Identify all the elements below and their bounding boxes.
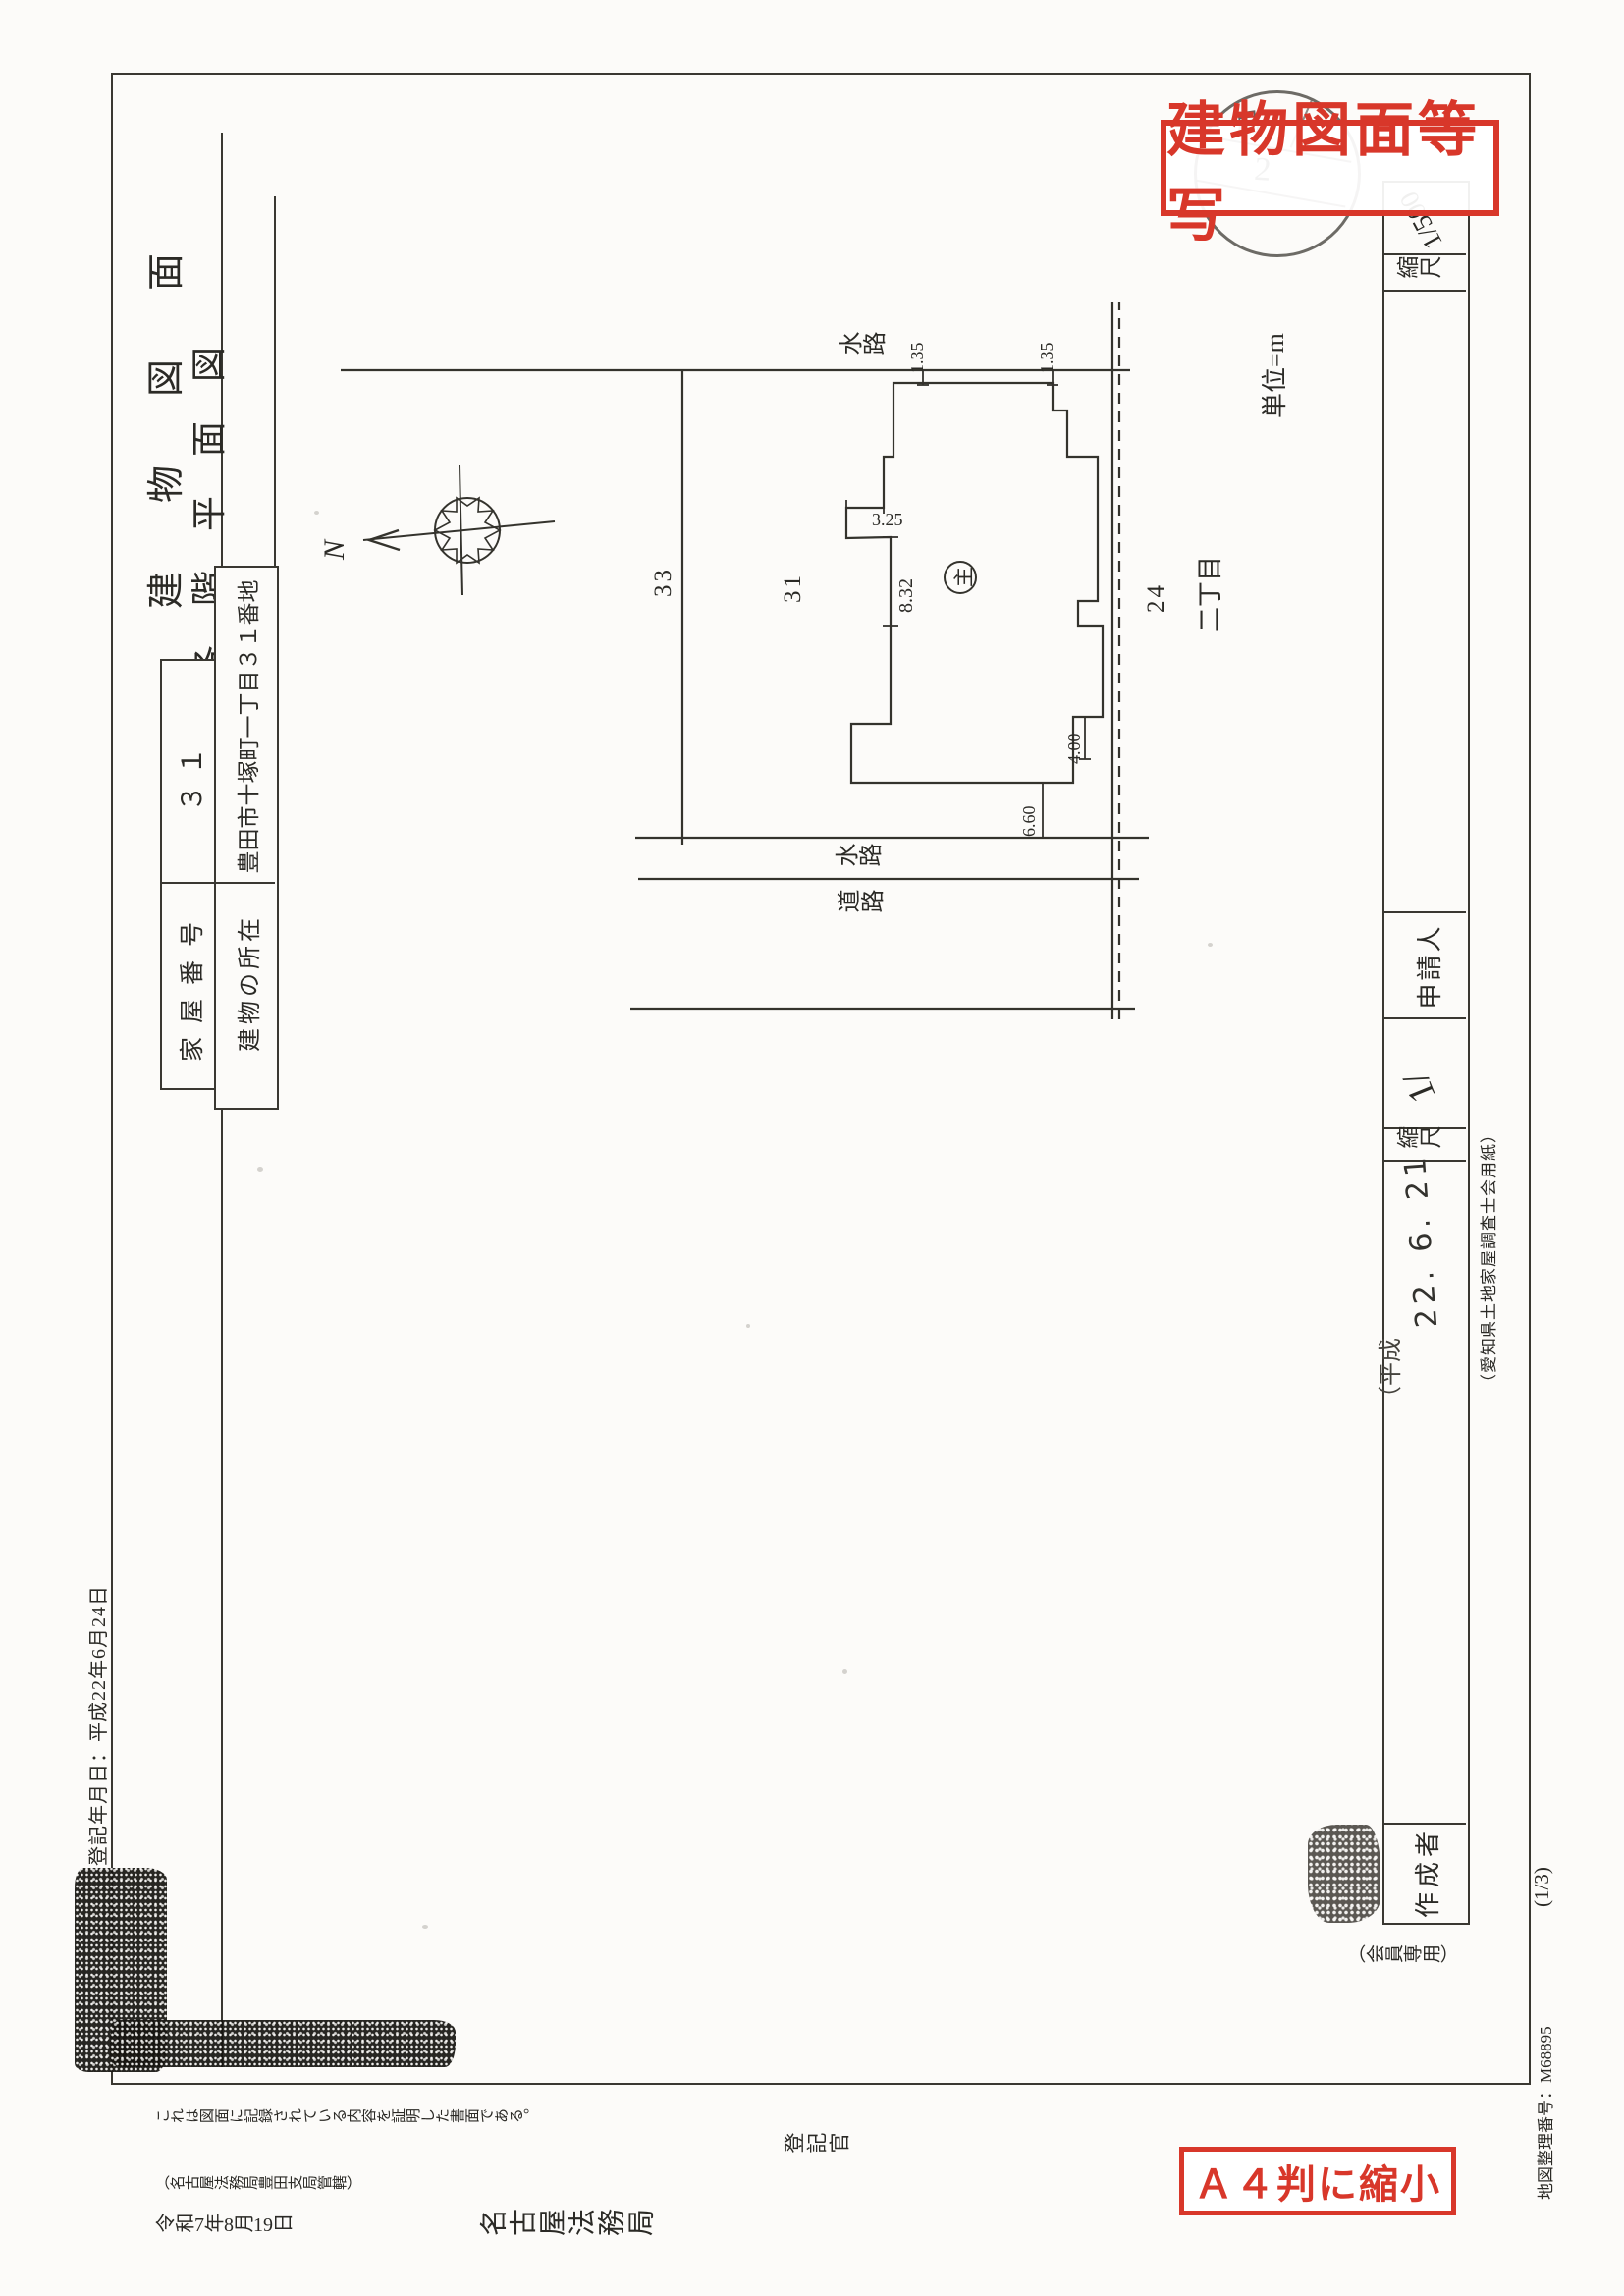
site-plan: [295, 244, 1296, 1049]
illegible-scribble-stamp: [1308, 1825, 1380, 1923]
rotated-form-layer: 建物図面 各階平面図 家屋番号 ３１ 建物の所在 豊田市十塚町一丁目３１番地: [0, 0, 1624, 2296]
table-value-location: 豊田市十塚町一丁目３１番地: [230, 575, 263, 878]
issue-date: 令和7年8月19日: [155, 2211, 293, 2239]
scan-speck: [314, 511, 319, 515]
label-road-west: 道路: [837, 887, 884, 921]
strip-divider: [1382, 1017, 1466, 1019]
strip-divider: [1382, 1823, 1466, 1825]
bureau-name: 名古屋法務局: [479, 2206, 656, 2245]
dim-135-b: 1.35: [1037, 343, 1057, 374]
registration-date-line: 登記年月日：平成22年6月24日: [82, 1585, 111, 1866]
copy-certification-stamp: 建物図面等写: [1161, 120, 1499, 216]
scan-speck: [746, 1324, 750, 1328]
jurisdiction-note: （名古屋法務局豊田支局管轄）: [155, 2173, 361, 2194]
label-waterway-west: 水路: [835, 841, 882, 875]
label-parcel-31: 31: [780, 573, 807, 603]
map-number: 地図整理番号：M68895: [1532, 2026, 1556, 2200]
bottom-strip: [1382, 181, 1470, 1925]
heisei-note: （平成: [1371, 1339, 1405, 1409]
scanned-document-page: 建物図面 各階平面図 家屋番号 ３１ 建物の所在 豊田市十塚町一丁目３１番地: [0, 0, 1624, 2296]
scan-speck: [842, 1669, 847, 1674]
table-value-house-number: ３１: [171, 666, 210, 884]
label-parcel-24: 24: [1143, 582, 1170, 613]
label-district: 二丁目: [1190, 556, 1226, 632]
scan-speck: [422, 1925, 428, 1929]
cell-applicant-label: 申請人: [1410, 921, 1446, 1011]
compass-icon: [363, 465, 555, 595]
scan-speck: [257, 1167, 263, 1172]
strip-divider: [1382, 911, 1466, 913]
scan-speck: [1208, 943, 1213, 947]
cell-author-label: 作成者: [1408, 1830, 1444, 1918]
strip-divider: [1382, 290, 1466, 292]
registrar-label: 登記官: [784, 2129, 851, 2159]
member-only-note: （会員専用）: [1347, 1942, 1459, 1969]
label-north: N: [318, 540, 352, 560]
paper-note: （愛知県土地家屋調査士会用紙）: [1475, 1125, 1499, 1391]
label-main-building-mark: 主: [948, 567, 978, 587]
certification-sentence: これは図面に記録されている内容を証明した書面である。: [155, 2106, 538, 2127]
table-label-house-number: 家屋番号: [173, 894, 208, 1076]
table-label-location: 建物の所在: [230, 892, 264, 1074]
label-unit: 単位=m: [1255, 333, 1291, 418]
label-waterway-east: 水路: [839, 329, 886, 363]
page-indicator: (1/3): [1530, 1867, 1554, 1907]
dim-660: 6.60: [1019, 806, 1040, 838]
a4-reduction-stamp: Ａ４判に縮小: [1179, 2147, 1456, 2215]
dim-325: 3.25: [872, 510, 903, 530]
label-parcel-33: 33: [650, 567, 677, 597]
dim-400: 4.00: [1064, 734, 1085, 765]
dimension-ticks: [846, 370, 1091, 838]
dim-135-a: 1.35: [907, 343, 928, 374]
cell-scale-label: 縮尺: [1396, 253, 1441, 287]
redaction-blob-vertical: [110, 2020, 456, 2067]
dim-832: 8.32: [895, 578, 918, 613]
